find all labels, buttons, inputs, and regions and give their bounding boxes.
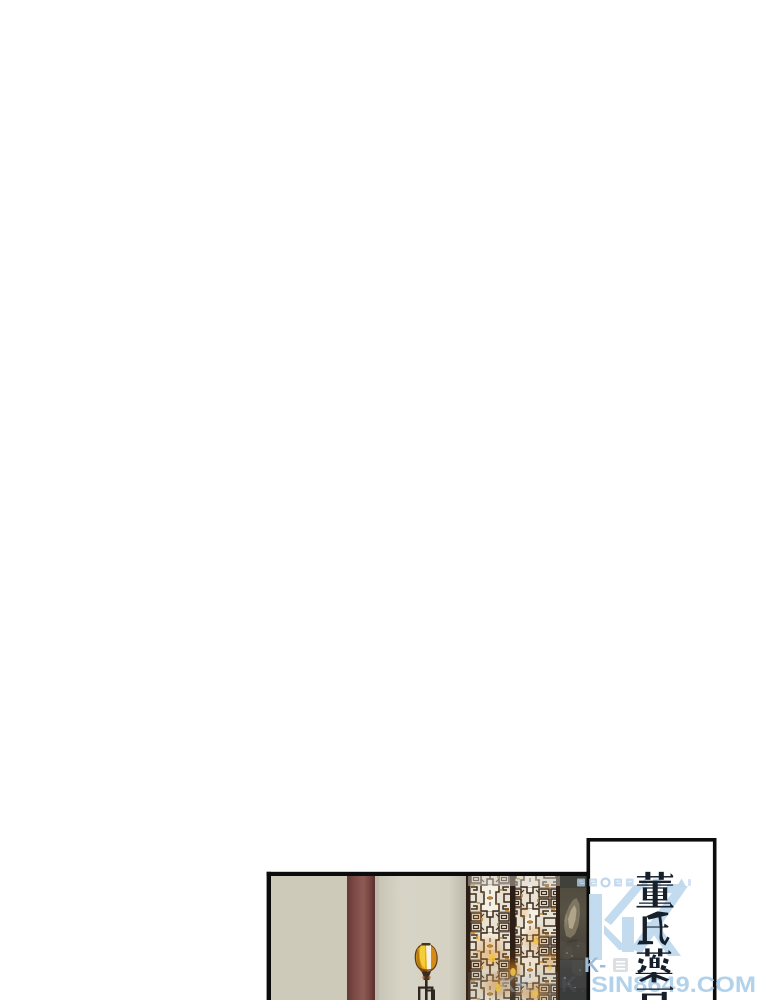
svg-text:KK: KK (500, 972, 532, 997)
svg-text:SIN8649.COM: SIN8649.COM (591, 972, 756, 997)
svg-text:K: K (561, 972, 577, 997)
